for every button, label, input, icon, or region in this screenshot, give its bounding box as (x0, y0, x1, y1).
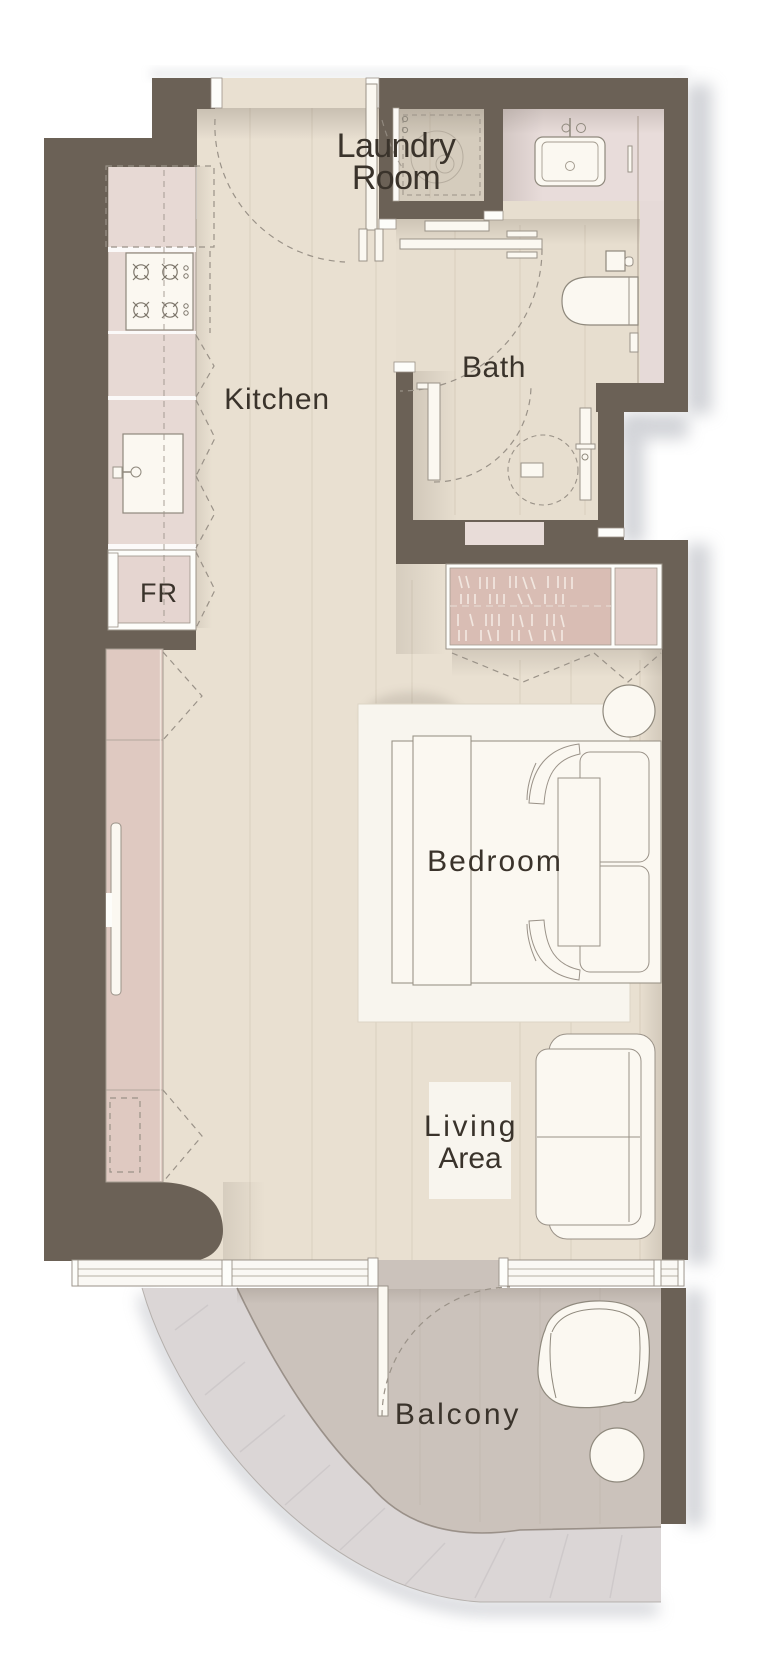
svg-text:Living: Living (424, 1110, 518, 1143)
svg-text:Bath: Bath (462, 351, 526, 384)
svg-text:FR: FR (140, 578, 178, 608)
svg-text:Balcony: Balcony (395, 1398, 521, 1431)
svg-text:Area: Area (438, 1142, 502, 1175)
svg-text:Bedroom: Bedroom (427, 845, 563, 878)
svg-text:Kitchen: Kitchen (224, 383, 330, 416)
svg-text:Room: Room (352, 159, 440, 197)
